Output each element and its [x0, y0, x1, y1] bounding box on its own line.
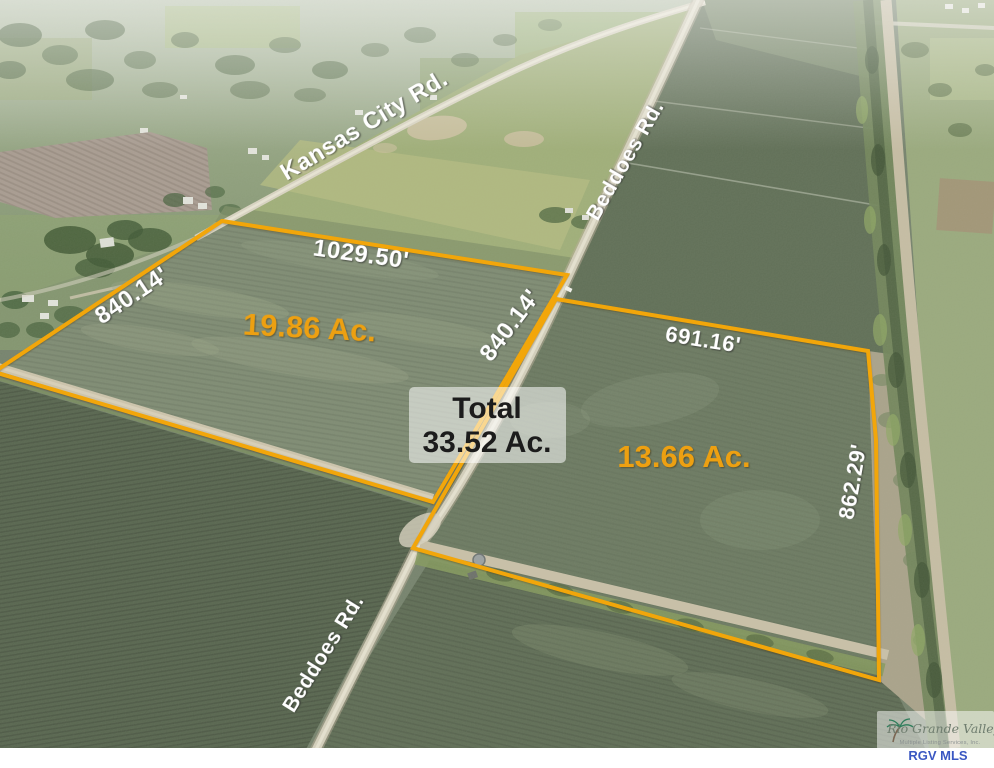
watermark-brand: Rio Grande Valley — [886, 721, 994, 736]
grain-overlay — [0, 0, 994, 748]
aerial-listing-photo: Kansas City Rd. Beddoes Rd. Beddoes Rd. … — [0, 0, 994, 768]
photo-background — [0, 0, 994, 768]
acreage-left: 19.86 Ac. — [242, 307, 377, 349]
total-callout: Total 33.52 Ac. — [409, 387, 566, 463]
watermark-subtitle: Multiple Listing Services, Inc. — [900, 740, 981, 746]
acreage-right: 13.66 Ac. — [617, 439, 750, 474]
white-margin-bottom — [0, 748, 994, 768]
total-value: 33.52 Ac. — [423, 426, 552, 459]
total-label: Total — [452, 392, 521, 425]
watermark-mls: RGV MLS — [908, 748, 968, 763]
